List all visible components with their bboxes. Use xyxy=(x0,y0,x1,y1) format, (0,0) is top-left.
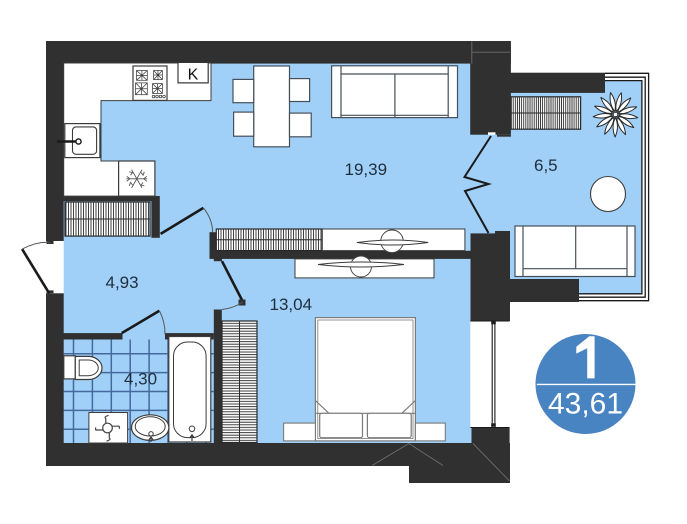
svg-text:19,39: 19,39 xyxy=(345,160,388,179)
svg-text:K: K xyxy=(188,67,199,84)
svg-text:13,04: 13,04 xyxy=(270,295,313,314)
svg-text:4,93: 4,93 xyxy=(106,273,139,292)
svg-text:43,61: 43,61 xyxy=(548,388,623,421)
svg-text:6,5: 6,5 xyxy=(534,156,558,175)
svg-text:4,30: 4,30 xyxy=(124,370,157,389)
